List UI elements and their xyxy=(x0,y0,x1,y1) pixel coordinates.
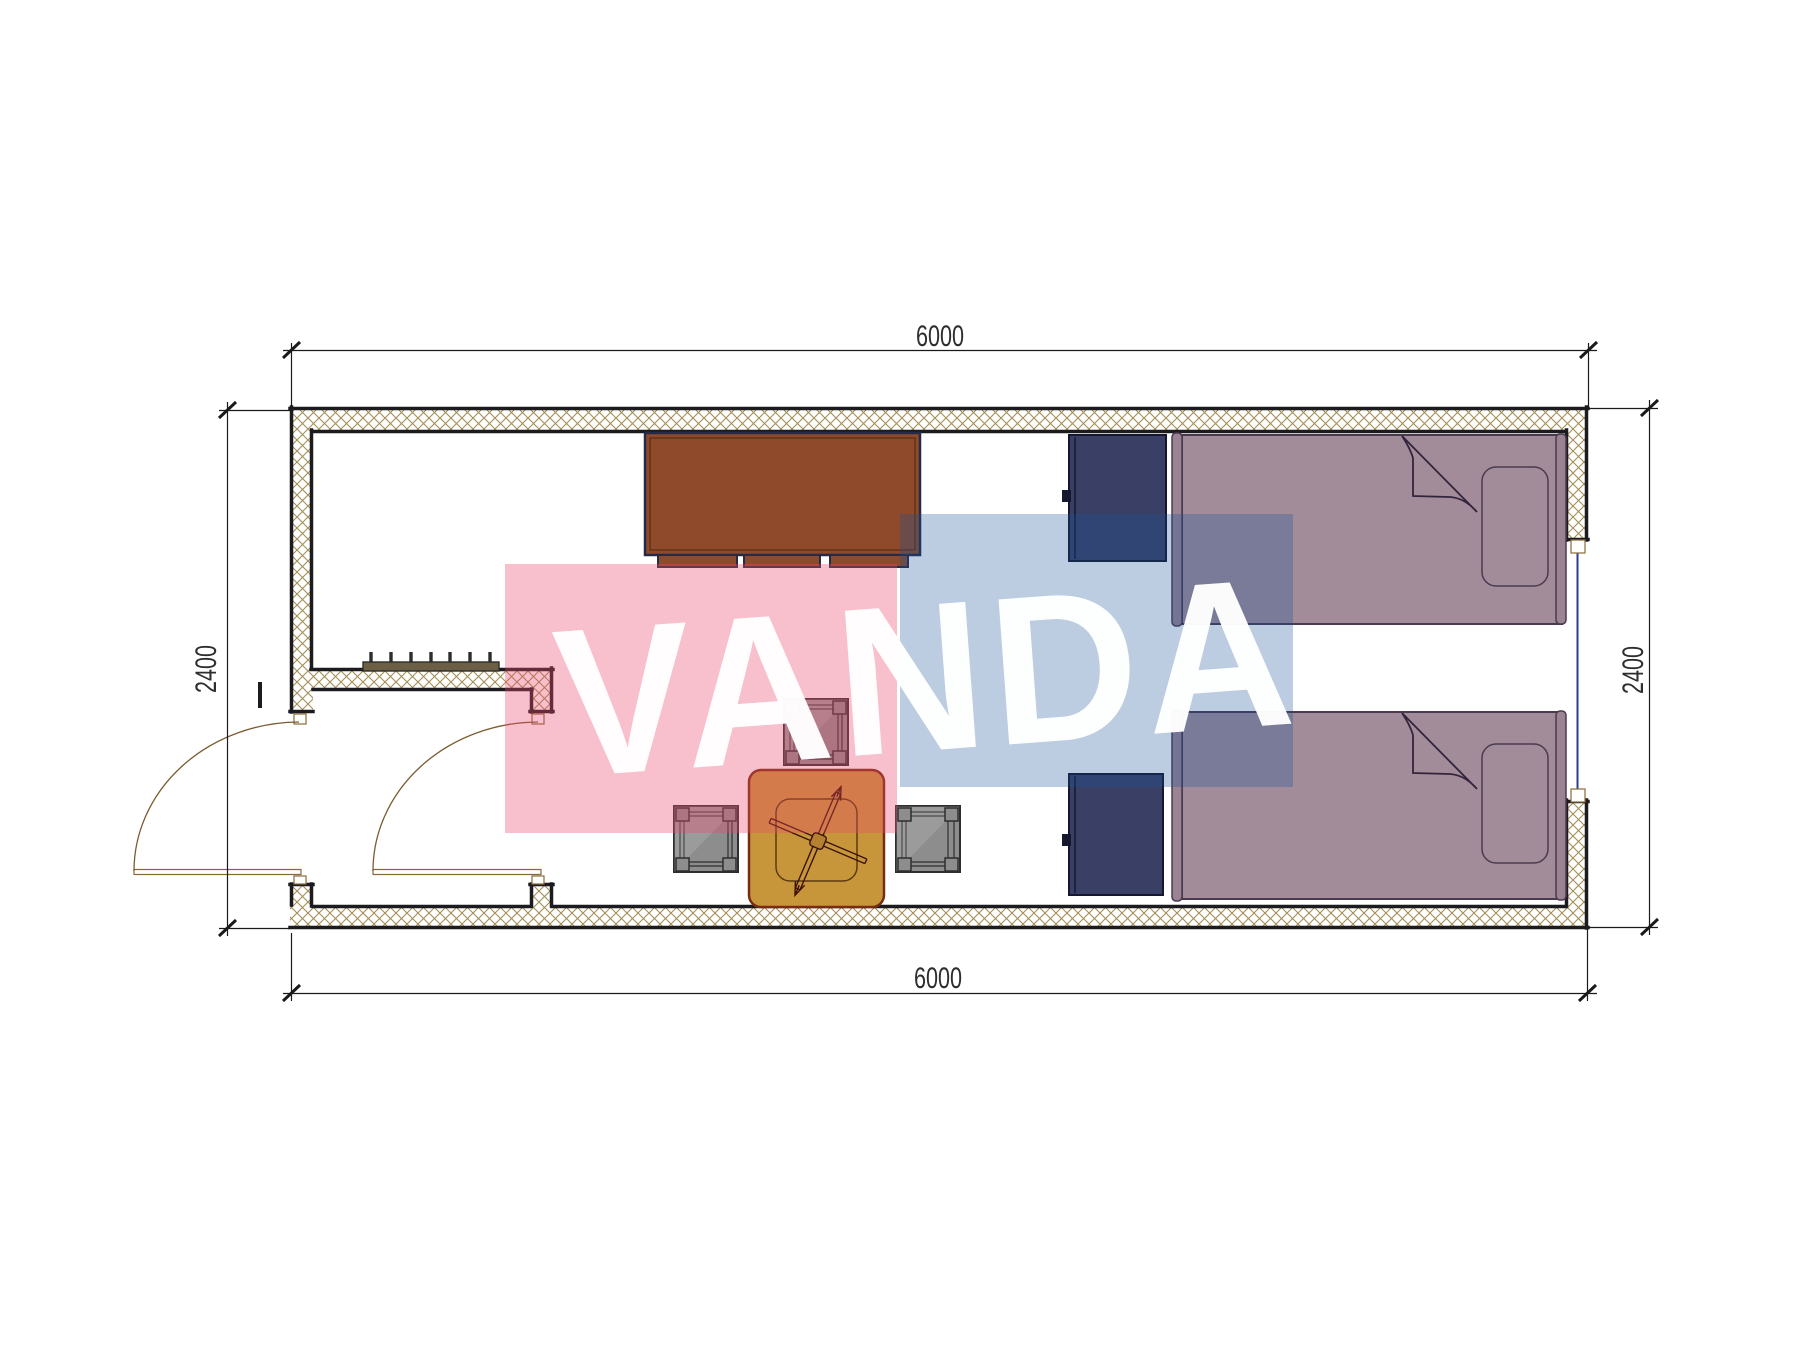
svg-text:6000: 6000 xyxy=(916,318,964,352)
svg-text:6000: 6000 xyxy=(914,960,962,994)
svg-text:2400: 2400 xyxy=(1615,646,1649,694)
svg-text:2400: 2400 xyxy=(188,645,222,693)
